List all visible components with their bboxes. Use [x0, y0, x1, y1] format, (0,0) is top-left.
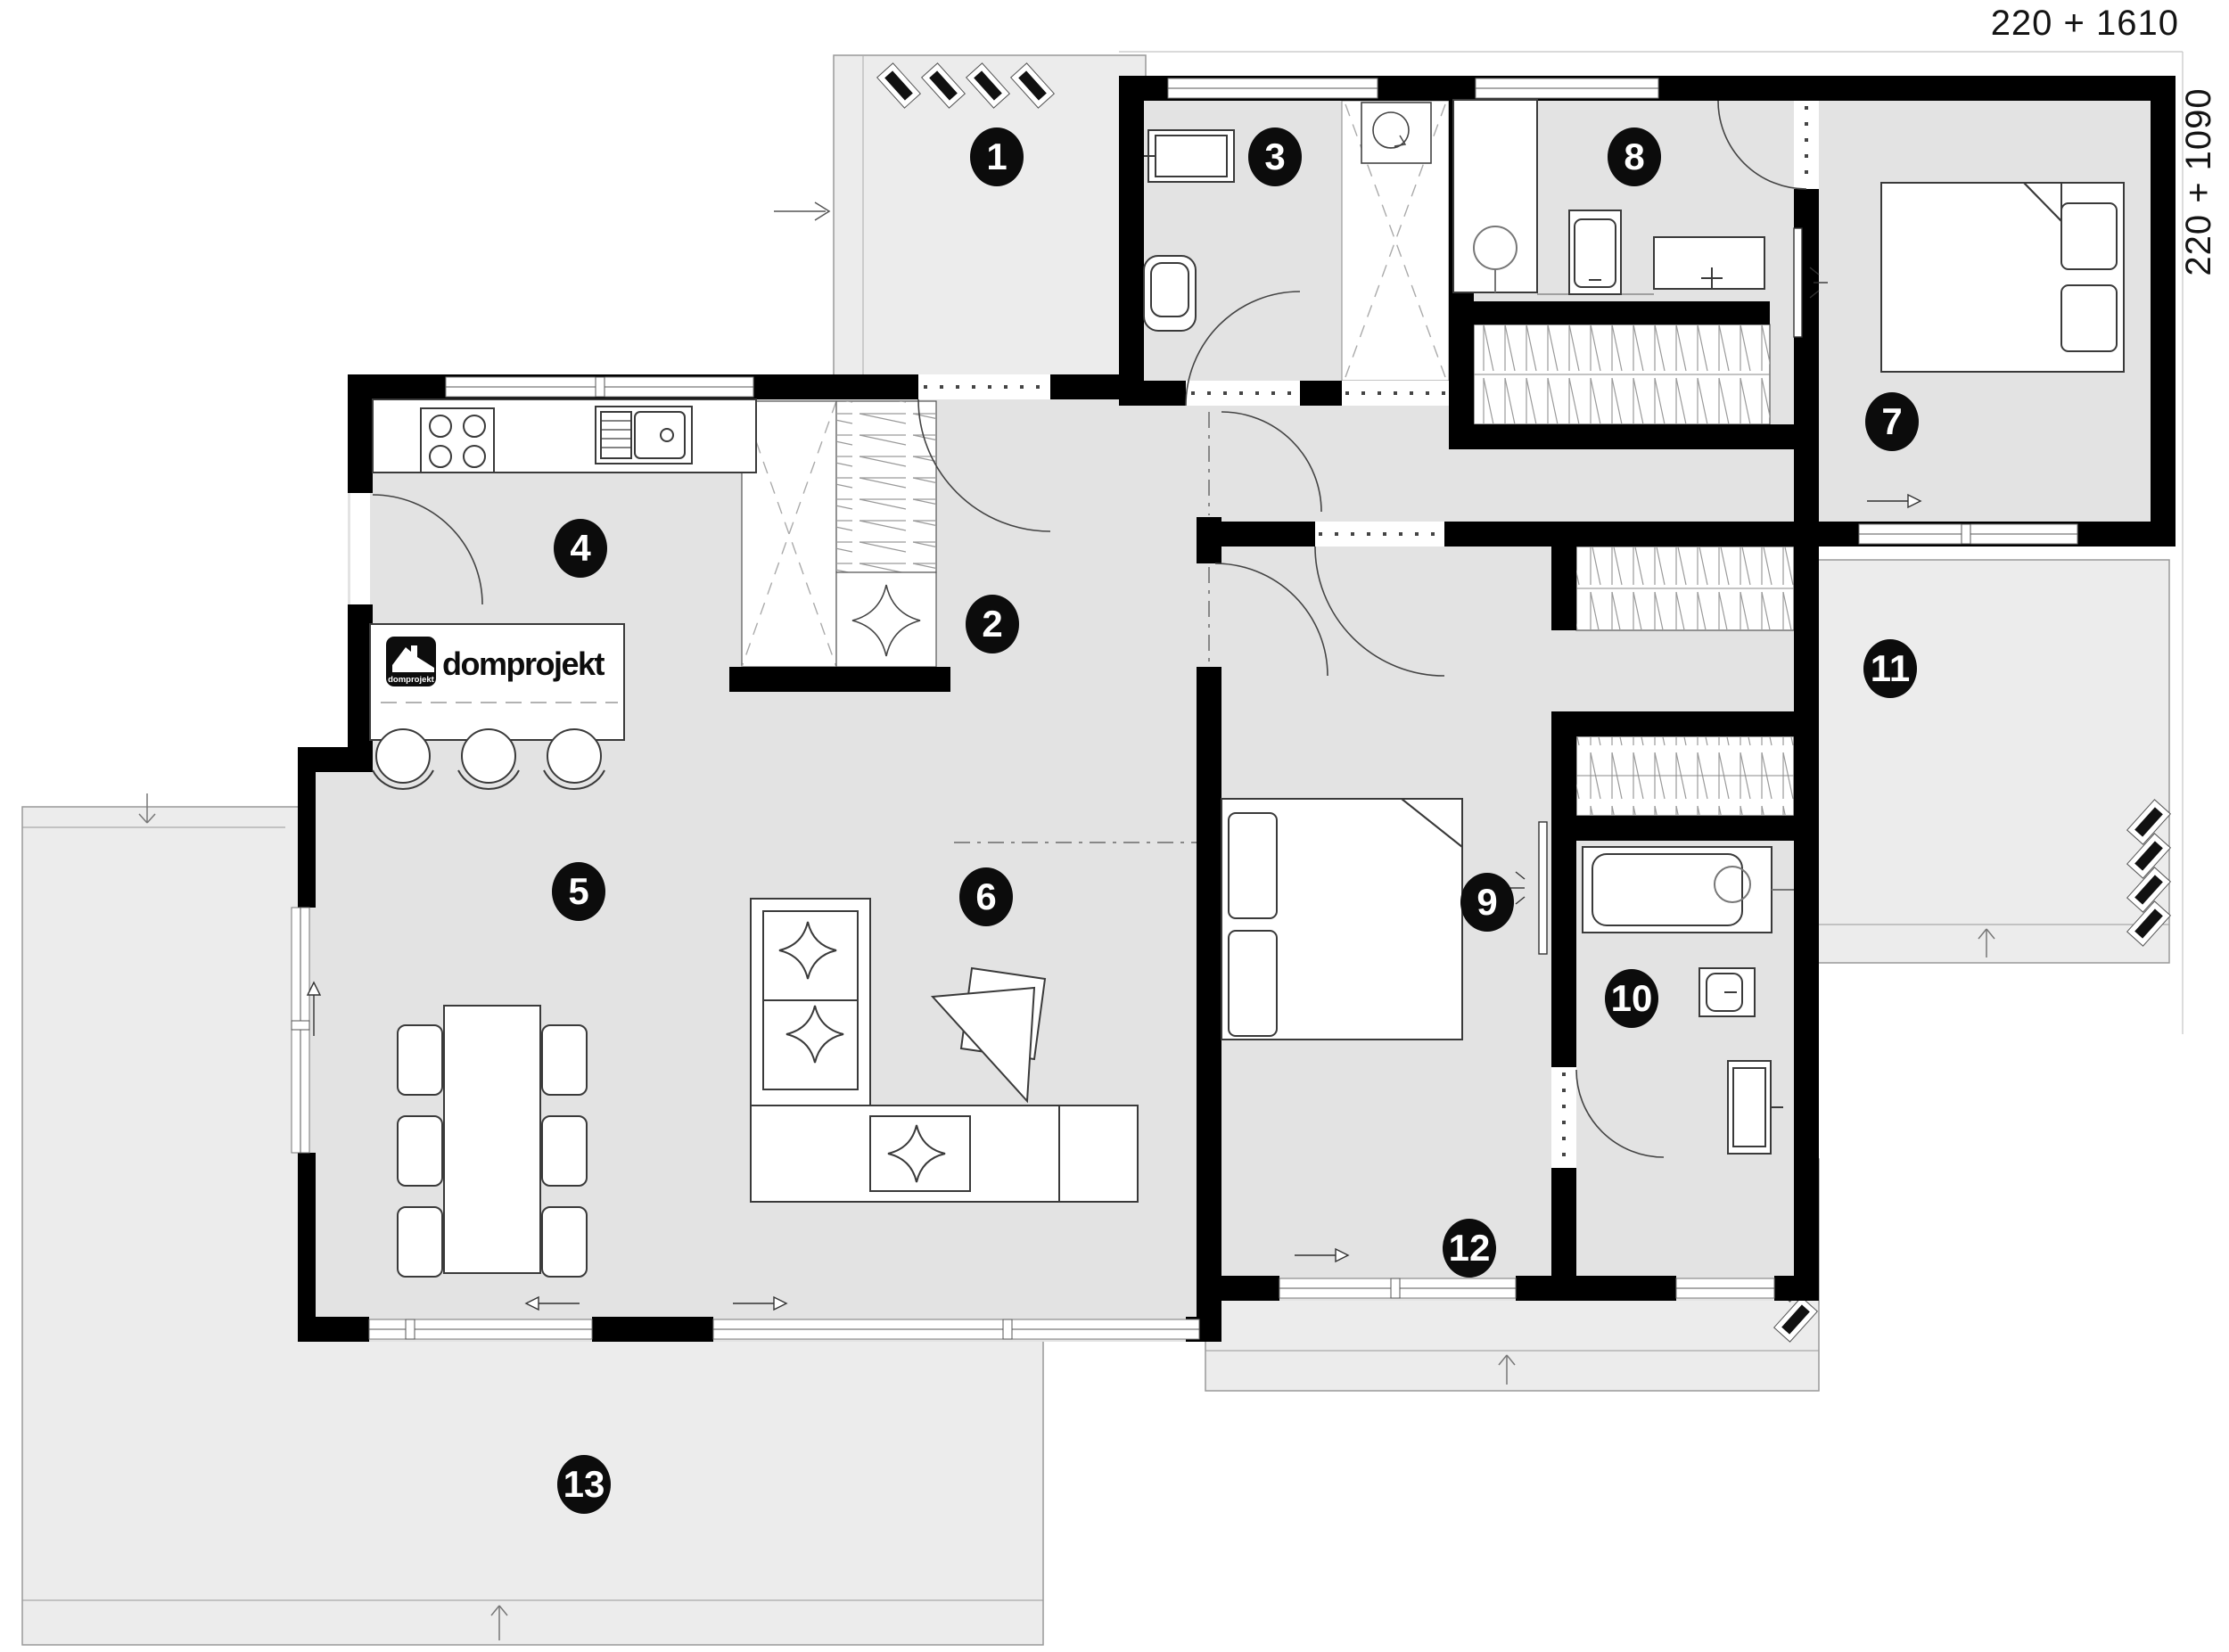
pillow — [1229, 813, 1277, 918]
room-badge-12: 12 — [1443, 1219, 1496, 1278]
bar-stool — [462, 729, 515, 783]
room-badge-4: 4 — [554, 519, 607, 578]
window-kitchen — [446, 377, 753, 397]
logo-brand-text: domprojekt — [442, 645, 605, 682]
window-utility8 — [1476, 78, 1658, 98]
washbasin-3 — [1144, 130, 1234, 182]
window-living-west — [292, 908, 309, 1153]
room-badge-9: 9 — [1460, 873, 1514, 932]
terrace-11 — [1817, 560, 2169, 963]
window-living-south-1 — [369, 1319, 592, 1339]
pillow — [1229, 931, 1277, 1036]
dimension-top-right: 220 + 1610 — [1991, 4, 2179, 44]
entry-arrow — [774, 202, 829, 220]
window-bedroom9 — [1279, 1278, 1516, 1298]
dimension-right-side: 220 + 1090 — [2179, 57, 2222, 307]
kitchen-counter — [373, 399, 756, 473]
floor-plan-page: domprojekt domprojekt 1 2 3 4 5 6 7 8 9 … — [0, 0, 2229, 1652]
window-bathroom3 — [1168, 78, 1378, 98]
room-badge-2: 2 — [966, 595, 1019, 653]
dining-table — [444, 1006, 540, 1273]
room-badge-5: 5 — [552, 862, 605, 921]
toilet-3 — [1144, 256, 1196, 331]
logo-icon-text: domprojekt — [388, 675, 435, 685]
chair — [398, 1116, 442, 1186]
room-badge-8: 8 — [1608, 127, 1661, 186]
pillow — [2061, 203, 2117, 269]
room-badge-11: 11 — [1863, 639, 1917, 698]
window-bathroom10 — [1676, 1278, 1774, 1298]
shower-unit — [1361, 103, 1431, 163]
chair — [542, 1116, 587, 1186]
bar-stool — [547, 729, 601, 783]
bathtub — [1583, 847, 1794, 933]
kitchen-sink — [596, 407, 692, 464]
room-badge-1: 1 — [970, 127, 1024, 186]
room-badge-7: 7 — [1865, 392, 1919, 451]
chair — [398, 1207, 442, 1277]
room-badge-10: 10 — [1605, 969, 1658, 1028]
window-living-south-2 — [713, 1319, 1199, 1339]
washing-machine — [1569, 210, 1621, 294]
chair — [542, 1207, 587, 1277]
room-badge-6: 6 — [959, 867, 1013, 926]
bed-7 — [1881, 183, 2124, 372]
chair — [398, 1025, 442, 1095]
dimension-right-text: 220 + 1090 — [2179, 57, 2219, 307]
chair — [542, 1025, 587, 1095]
dining-set — [398, 1006, 587, 1277]
room-badge-13: 13 — [557, 1455, 611, 1514]
window-bedroom7 — [1859, 524, 2077, 544]
pillow — [2061, 285, 2117, 351]
room-badge-3: 3 — [1248, 127, 1302, 186]
bed-9 — [1221, 799, 1462, 1040]
utility-sink — [1654, 237, 1764, 289]
toilet-10 — [1699, 968, 1755, 1016]
bar-stool — [376, 729, 430, 783]
floor-plan-drawing: domprojekt domprojekt — [0, 0, 2229, 1652]
